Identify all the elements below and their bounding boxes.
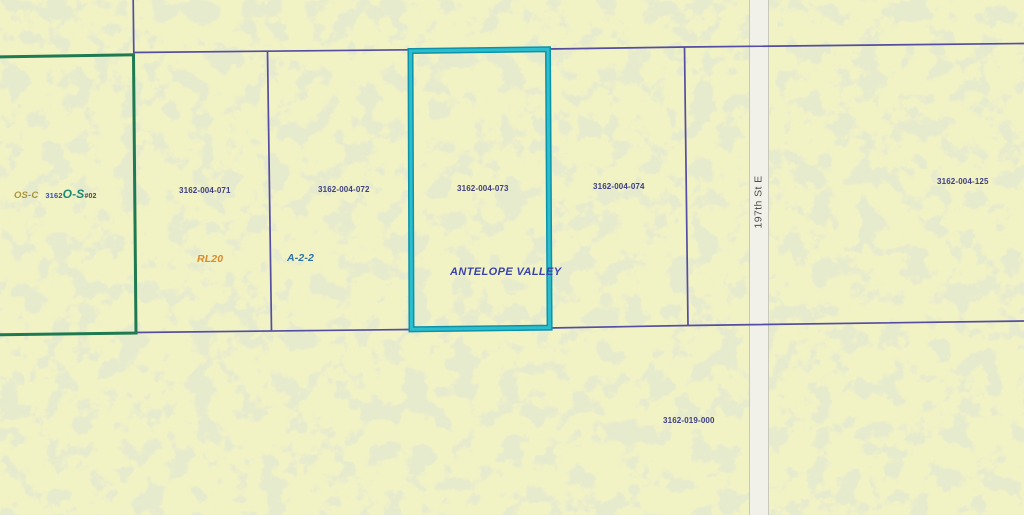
boundary-line-vertical-east xyxy=(685,47,689,326)
parcel-apn-073: 3162-004-073 xyxy=(457,184,509,193)
zoning-label-rl20: RL20 xyxy=(197,253,223,265)
boundary-line-vertical-west xyxy=(133,0,134,53)
street-label: 197th St E xyxy=(753,175,765,228)
zoning-label-group-os: OS-C 3162 O-S #02 xyxy=(14,187,97,201)
zoning-label-a-2-2: A-2-2 xyxy=(287,252,314,264)
parcel-map: 197th St E OS-C 3162 O-S #02 RL20 A-2-2 … xyxy=(0,0,1024,515)
boundary-line-top xyxy=(133,44,1024,53)
area-label-antelope-valley: ANTELOPE VALLEY xyxy=(450,266,562,278)
parcel-apn-071: 3162-004-071 xyxy=(179,186,231,195)
street-label-container: 197th St E xyxy=(746,152,772,252)
parcel-apn-125: 3162-004-125 xyxy=(937,177,989,186)
parcel-apn-072: 3162-004-072 xyxy=(318,185,370,194)
boundary-line-vertical-mid xyxy=(268,51,272,331)
zoning-label-os-c: OS-C xyxy=(14,190,38,201)
zoning-case-prefix: 3162 xyxy=(45,191,62,200)
zoning-label-o-s: O-S xyxy=(63,187,85,201)
parcel-apn-019: 3162-019-000 xyxy=(663,416,715,425)
parcel-boundaries xyxy=(0,0,1024,515)
parcel-apn-074: 3162-004-074 xyxy=(593,182,645,191)
zoning-case-suffix: #02 xyxy=(84,193,96,200)
boundary-line-bottom xyxy=(135,321,1024,333)
